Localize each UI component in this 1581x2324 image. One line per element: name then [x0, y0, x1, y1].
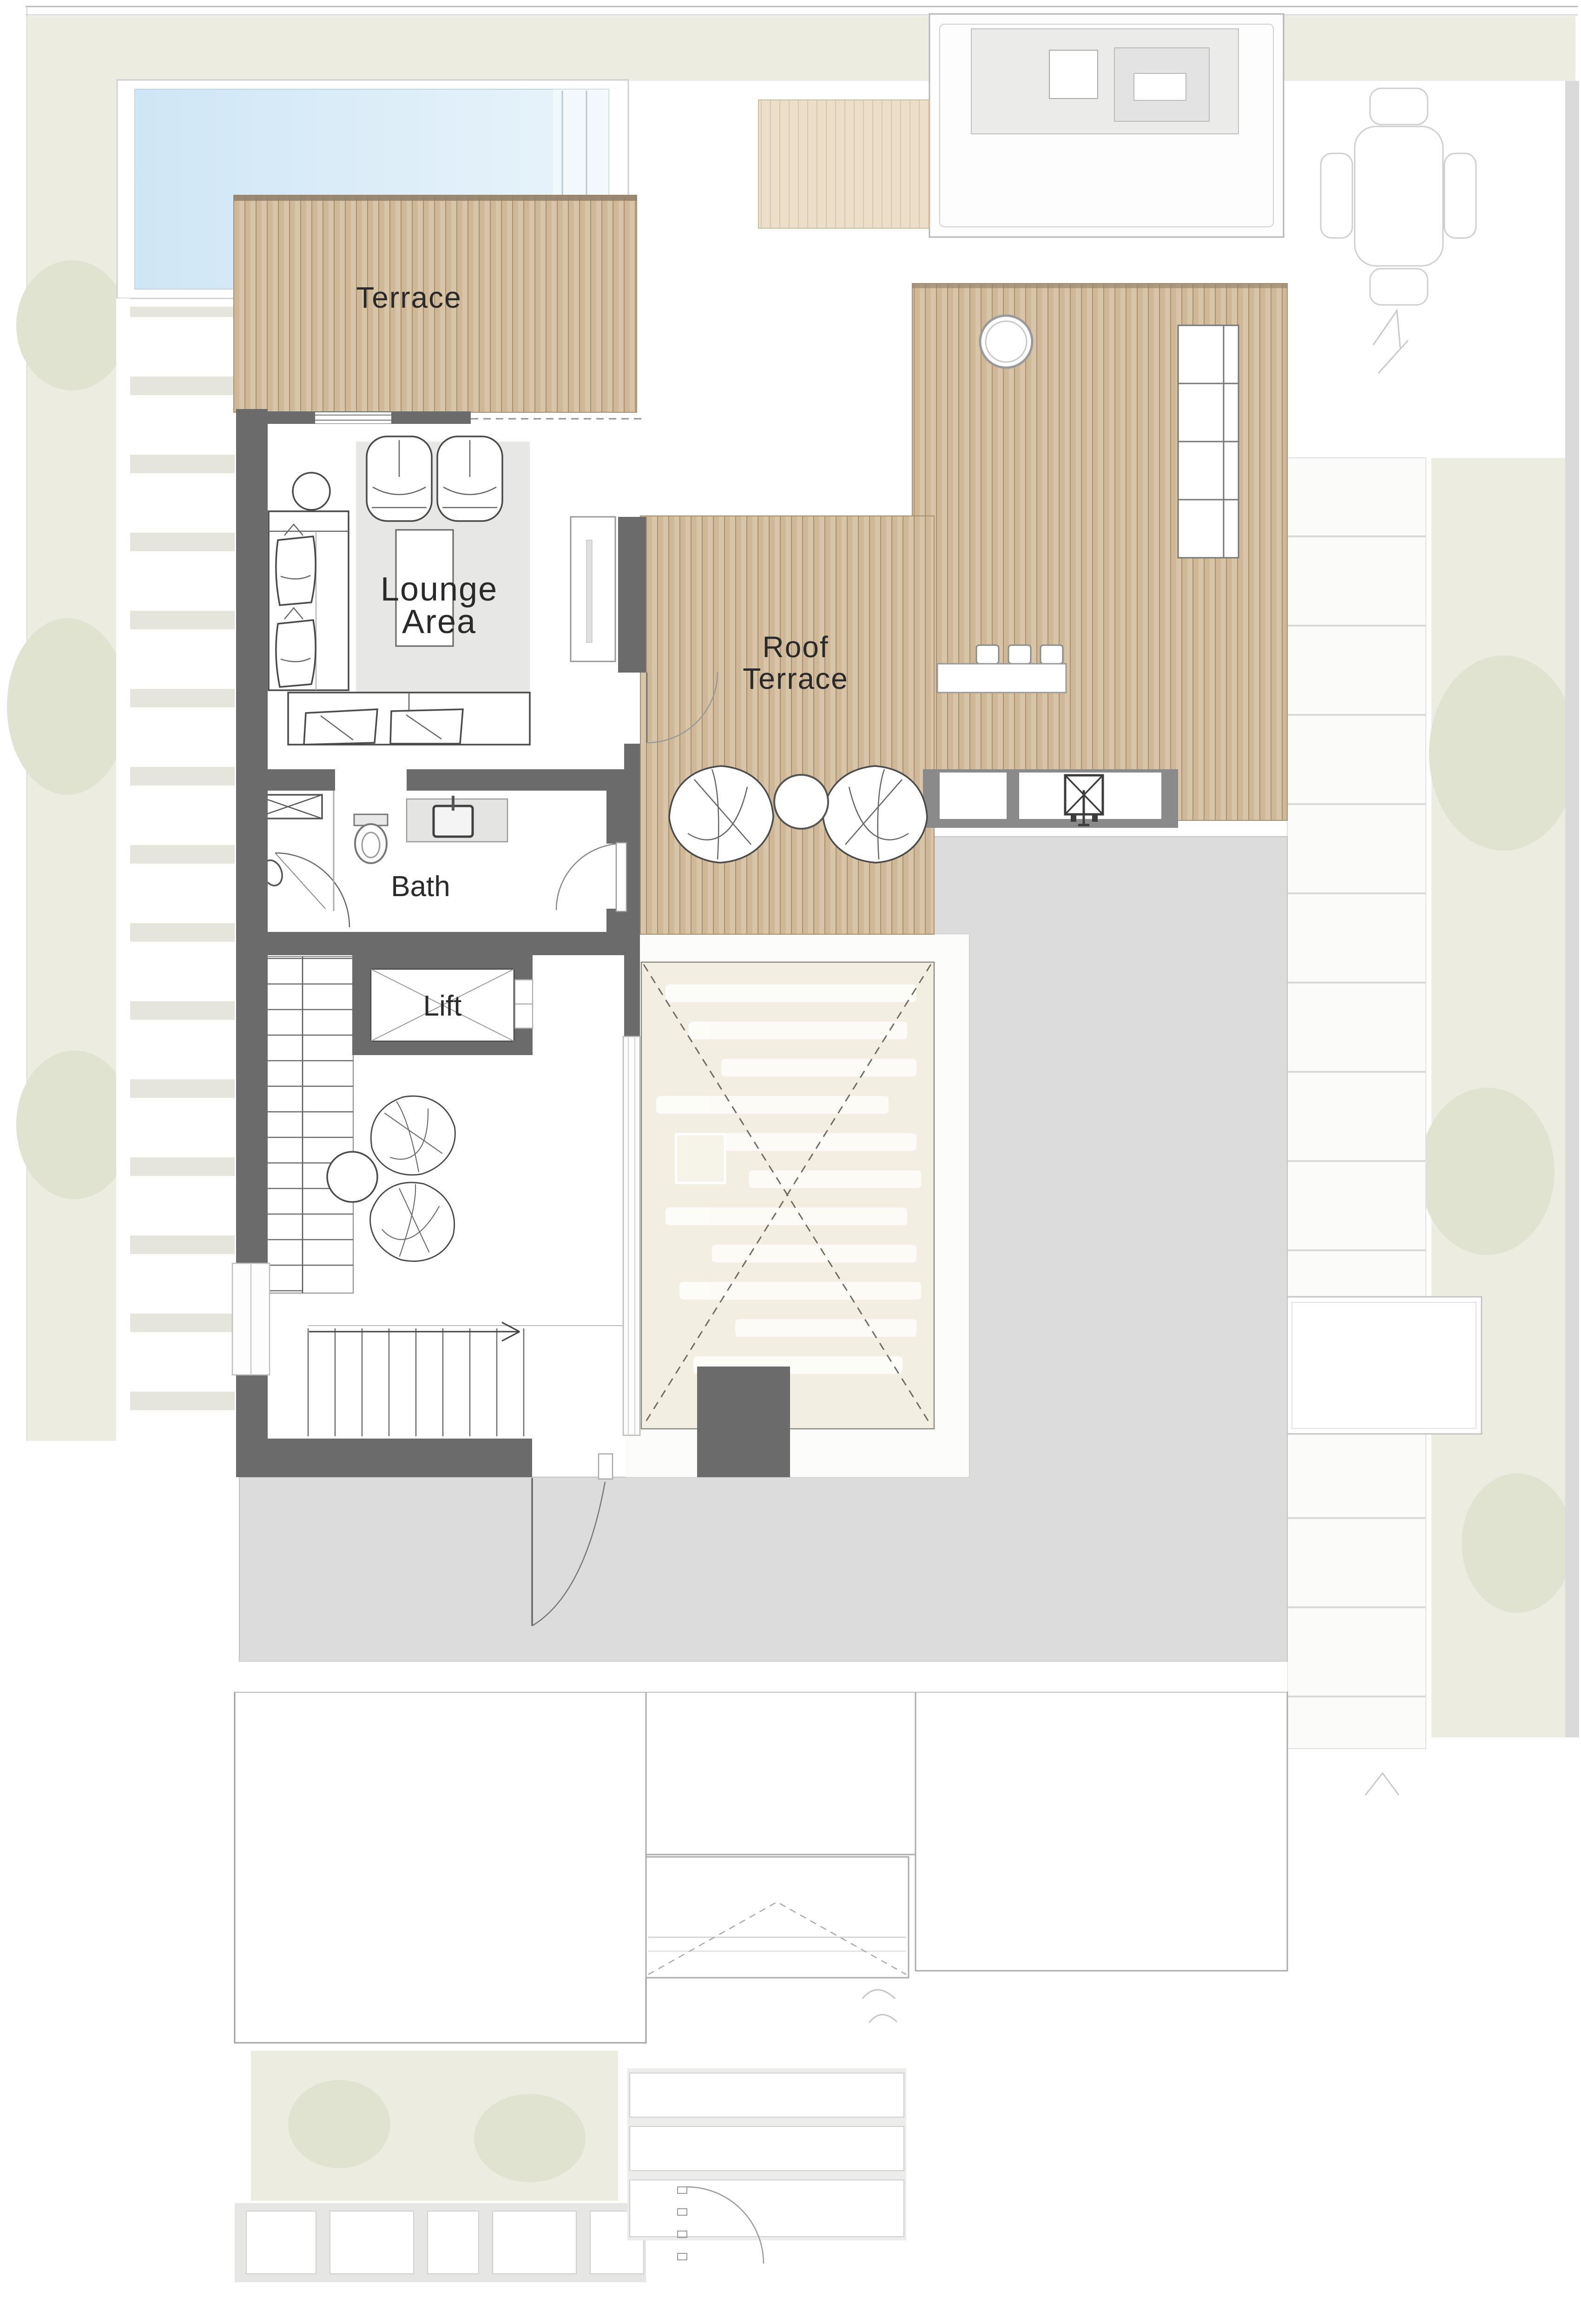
roof-terrace-label-line2: Terrace [743, 662, 848, 695]
roof-terrace-label-line1: Roof [762, 630, 829, 664]
lift-label: Lift [423, 990, 462, 1022]
lounge-armchair [367, 436, 432, 521]
bar-counter [937, 664, 1066, 693]
lounge-label-line2: Area [402, 603, 476, 640]
lower-structures [235, 1692, 1287, 2043]
dining-chair-north [1370, 88, 1428, 125]
lounge-armchair [437, 436, 502, 521]
lower-box-left [235, 1692, 646, 2043]
garden-top-band [28, 16, 1575, 81]
bbq-grill-icon [1065, 775, 1103, 825]
wall-bath-south [236, 932, 625, 955]
tree-sketch-top [1373, 310, 1408, 373]
skylight-hatch [676, 1134, 725, 1183]
deck-side-table [774, 775, 828, 829]
wall-bath-north [236, 769, 625, 791]
louver-slat [630, 2073, 904, 2117]
wall-void-pier [697, 1367, 790, 1477]
paver [493, 2211, 576, 2274]
dining-chair-east [1444, 153, 1476, 238]
bath-north-opening [335, 768, 407, 792]
right-boundary-wall [1565, 81, 1579, 1737]
dining-chair-south [1370, 269, 1428, 305]
wall-bath-east-upper [606, 790, 625, 844]
sliding-door-terrace [315, 412, 391, 423]
wall-south [236, 1439, 532, 1477]
tree-sketch-bottom [1365, 1773, 1399, 1795]
dining-chair-west [1321, 153, 1352, 238]
plant-sketch [863, 1990, 897, 2023]
hall-lounge-chair [361, 1172, 465, 1272]
louver-slat [630, 2126, 904, 2171]
garden-dining-set [1321, 88, 1476, 305]
lounge-label-line1: Lounge [381, 571, 498, 608]
left-louver-pergola [130, 307, 235, 1441]
vanity-sink [407, 796, 507, 842]
roof-terrace-deck-west [640, 516, 934, 934]
lounge-sofa [269, 511, 349, 690]
dining-table [1355, 126, 1443, 266]
tv-media-wall [571, 517, 615, 661]
neighbor-structure-box [1286, 1297, 1482, 1434]
wall-lounge-east [618, 517, 646, 673]
louver-slat [630, 2180, 904, 2237]
garage-roof-block [929, 14, 1284, 237]
hall-seating [327, 1087, 465, 1272]
lower-box-middle [646, 1692, 916, 1855]
shower-enclosure [259, 853, 349, 927]
deck-lounge-chair [669, 766, 773, 863]
lower-garden-and-pavers [235, 2051, 906, 2282]
toilet [354, 814, 388, 863]
paver [246, 2211, 316, 2274]
lift-door [515, 980, 533, 1028]
roof-edge-gap [228, 1662, 1287, 1692]
window-west [232, 1263, 270, 1375]
bar-stools [976, 645, 1063, 664]
lounge-side-table [293, 473, 330, 510]
upper-deck-strip [758, 100, 929, 228]
bath-door [556, 843, 626, 911]
deck-lounge-chair [823, 766, 927, 863]
deck-shelving [1178, 325, 1238, 558]
louver-frame-strip [116, 298, 130, 1441]
lounge-daybed [288, 693, 530, 745]
skylight-void [625, 934, 969, 1477]
paver [330, 2211, 414, 2274]
bathroom-fixtures [254, 790, 507, 927]
floor-plan-page: Terrace Lounge Area Roof Terrace Bath Li… [0, 0, 1581, 2324]
terrace-label: Terrace [356, 281, 461, 314]
floor-plan-drawing: Terrace Lounge Area Roof Terrace Bath Li… [0, 0, 1581, 2324]
hall-side-table [327, 1152, 377, 1202]
lower-box-framed [646, 1857, 909, 1978]
window-hall-east [623, 1037, 640, 1435]
paver [428, 2211, 479, 2274]
outdoor-kitchen [923, 769, 1178, 828]
bath-label: Bath [391, 871, 450, 903]
lower-box-right [916, 1692, 1287, 1971]
